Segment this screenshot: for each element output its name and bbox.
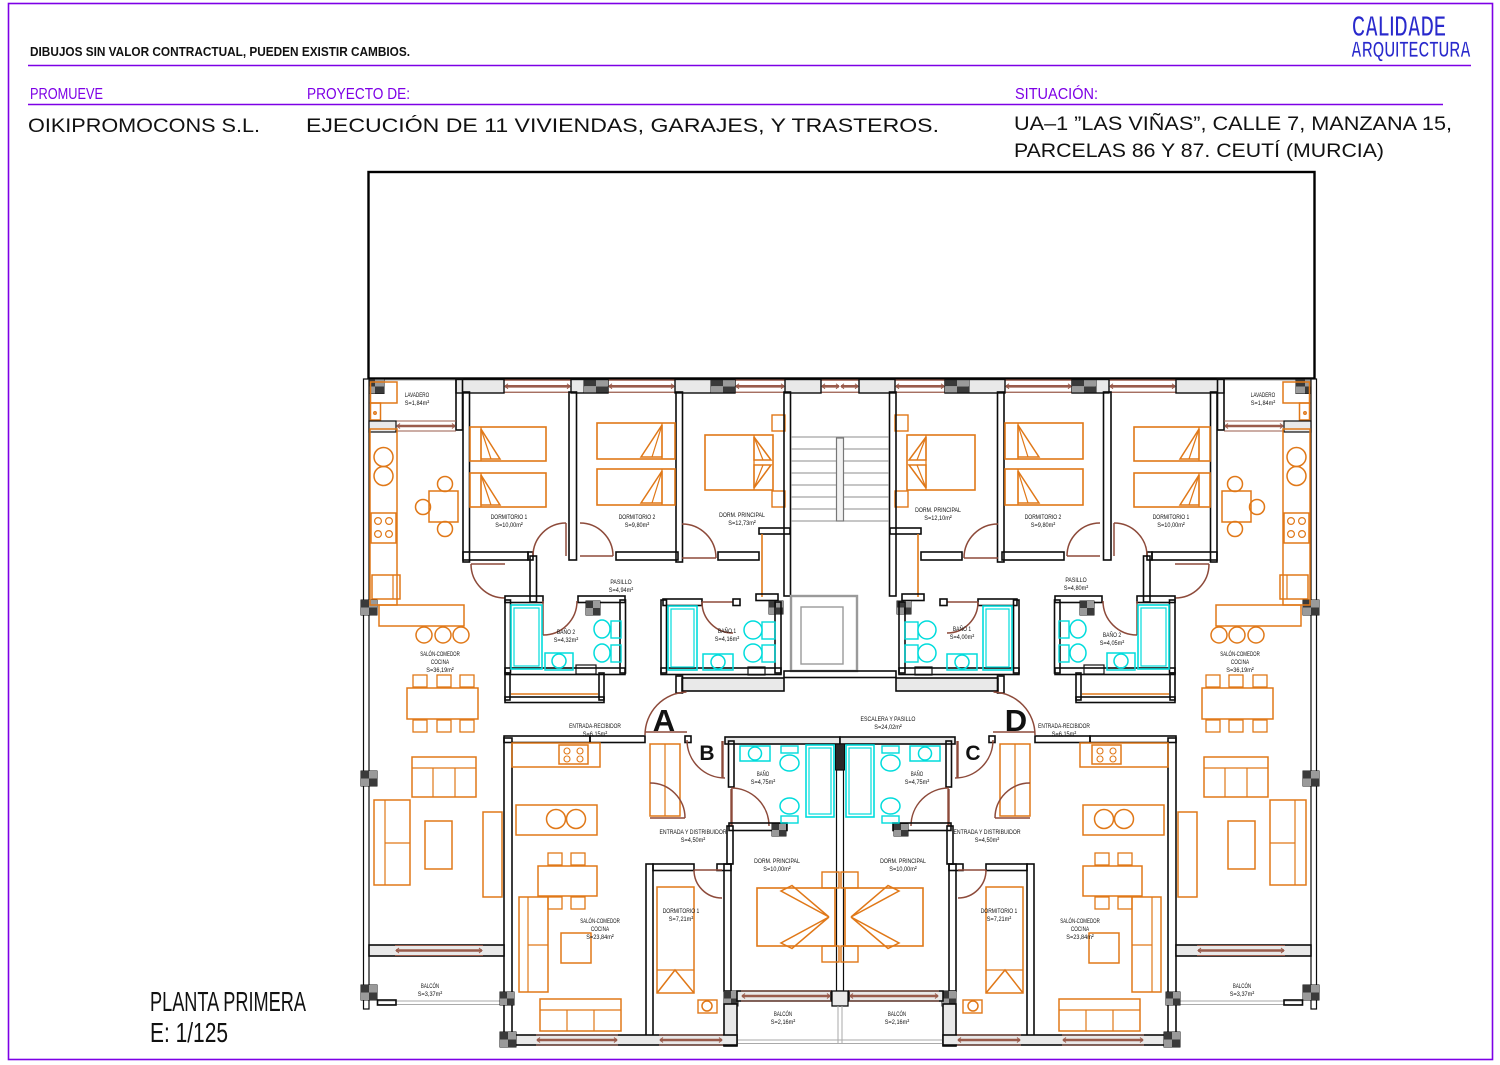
svg-text:BALCÓNS=3,37m²: BALCÓNS=3,37m² [1230, 981, 1255, 998]
svg-text:PROYECTO DE:: PROYECTO DE: [307, 86, 410, 103]
svg-text:A: A [653, 703, 675, 738]
svg-text:BAÑO 1S=4,16m²: BAÑO 1S=4,16m² [715, 626, 740, 643]
svg-text:EJECUCIÓN DE 11 VIVIENDAS,: EJECUCIÓN DE 11 VIVIENDAS, GARAJES, Y TR… [306, 114, 939, 137]
svg-text:LAVADEROS=1,84m²: LAVADEROS=1,84m² [405, 392, 430, 407]
svg-text:B: B [699, 742, 714, 765]
svg-text:BALCÓNS=2,16m²: BALCÓNS=2,16m² [771, 1009, 796, 1026]
svg-text:PROMUEVE: PROMUEVE [30, 86, 103, 103]
svg-text:LAVADEROS=1,84m²: LAVADEROS=1,84m² [1251, 392, 1276, 407]
svg-text:SITUACIÓN:: SITUACIÓN: [1015, 86, 1098, 103]
svg-text:OIKIPROMOCONS S.L.: OIKIPROMOCONS S.L. [28, 115, 260, 137]
svg-text:PARCELAS 86 Y 87. CEUTÍ (MURCI: PARCELAS 86 Y 87. CEUTÍ (MURCIA) [1014, 141, 1384, 162]
svg-text:BALCÓNS=2,16m²: BALCÓNS=2,16m² [885, 1009, 910, 1026]
svg-text:D: D [1005, 703, 1027, 738]
svg-text:BALCÓNS=3,37m²: BALCÓNS=3,37m² [418, 981, 443, 998]
svg-text:DORMITORIO 1S=10,00m²: DORMITORIO 1S=10,00m² [491, 514, 528, 529]
svg-text:UA–1 ”LAS VIÑAS”, CALLE 7, MAN: UA–1 ”LAS VIÑAS”, CALLE 7, MANZANA 15, [1014, 113, 1452, 135]
svg-text:E: 1/125: E: 1/125 [150, 1017, 228, 1048]
svg-text:PASILLOS=4,94m²: PASILLOS=4,94m² [609, 579, 634, 594]
svg-text:BAÑO 2S=4,32m²: BAÑO 2S=4,32m² [554, 627, 579, 644]
svg-text:BAÑO 2S=4,05m²: BAÑO 2S=4,05m² [1100, 630, 1125, 647]
svg-text:PLANTA PRIMERA: PLANTA PRIMERA [150, 986, 306, 1017]
svg-text:PASILLOS=4,80m²: PASILLOS=4,80m² [1064, 577, 1089, 592]
svg-text:BAÑO 1S=4,00m²: BAÑO 1S=4,00m² [950, 624, 975, 641]
svg-text:ARQUITECTURA: ARQUITECTURA [1351, 37, 1471, 62]
svg-text:DIBUJOS SIN VALOR CONTRACTU: DIBUJOS SIN VALOR CONTRACTUAL, PUEDEN EX… [30, 44, 410, 59]
svg-text:C: C [965, 742, 980, 765]
svg-text:DORMITORIO 1S=10,00m²: DORMITORIO 1S=10,00m² [1153, 514, 1190, 529]
